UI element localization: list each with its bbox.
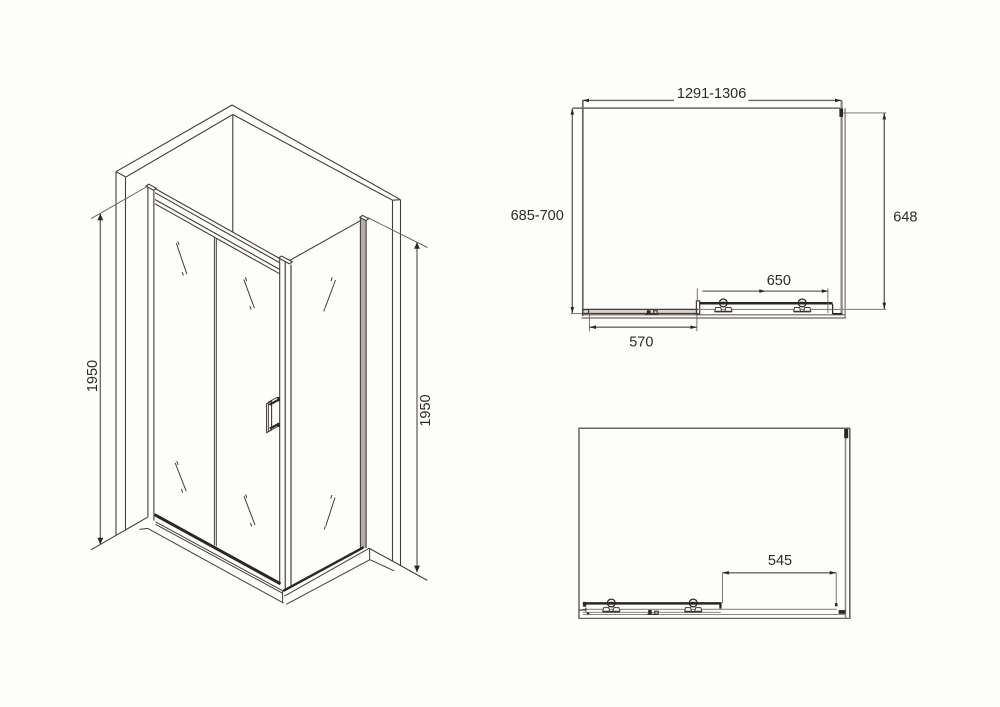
svg-text:1291-1306: 1291-1306: [677, 86, 746, 102]
svg-text:545: 545: [768, 553, 792, 569]
svg-text:648: 648: [893, 209, 917, 225]
svg-text:1950: 1950: [418, 394, 434, 426]
svg-text:570: 570: [629, 334, 653, 350]
svg-text:1950: 1950: [85, 360, 101, 392]
svg-text:650: 650: [767, 273, 791, 289]
svg-text:685-700: 685-700: [511, 208, 564, 224]
